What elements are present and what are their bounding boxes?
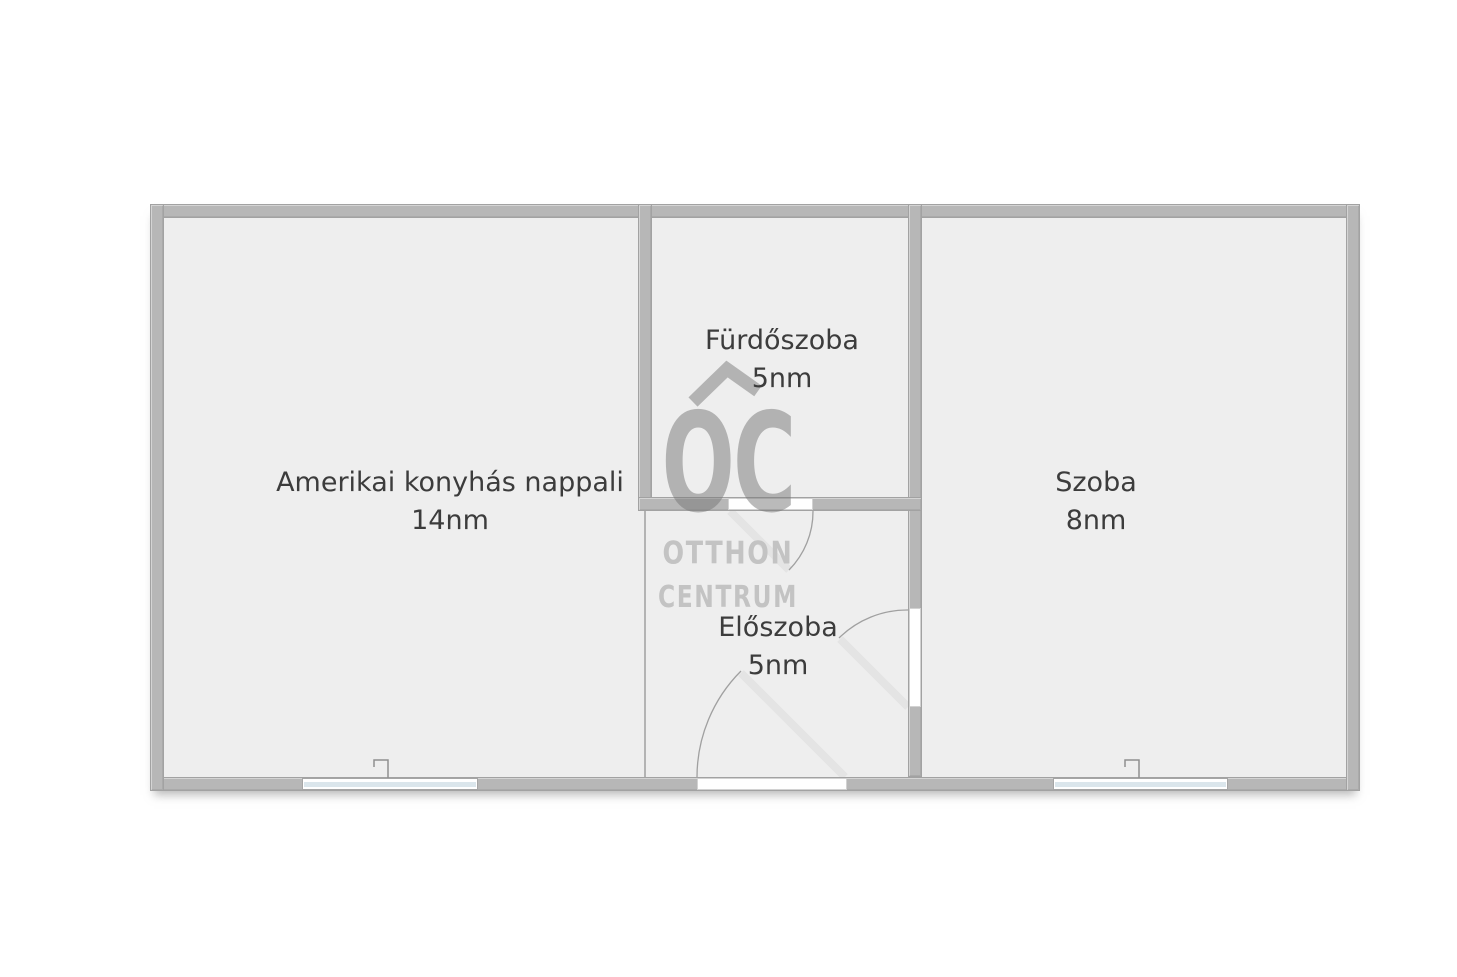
room-name: Amerikai konyhás nappali <box>276 464 624 502</box>
wall-divider-living-bathroom <box>638 204 652 511</box>
window-bedroom <box>1053 778 1228 790</box>
wall-top <box>150 204 1360 218</box>
room-label-bedroom: Szoba 8nm <box>1055 464 1137 540</box>
watermark-monogram: OC <box>662 396 795 533</box>
wall-right <box>1346 204 1360 791</box>
room-area: 5nm <box>718 647 838 685</box>
window-glass <box>1055 782 1226 787</box>
room-label-living: Amerikai konyhás nappali 14nm <box>276 464 624 540</box>
door-opening-bedroom <box>909 608 921 707</box>
room-label-bathroom: Fürdőszoba 5nm <box>705 322 859 398</box>
room-name: Előszoba <box>718 609 838 647</box>
door-opening-entry <box>697 778 847 790</box>
window-glass <box>304 782 476 787</box>
room-name: Fürdőszoba <box>705 322 859 360</box>
room-label-hall: Előszoba 5nm <box>718 609 838 685</box>
room-area: 14nm <box>276 502 624 540</box>
room-area: 5nm <box>705 360 859 398</box>
watermark-name-line1: OTTHON <box>663 539 794 570</box>
wall-left <box>150 204 164 791</box>
room-name: Szoba <box>1055 464 1137 502</box>
room-boundary-line <box>644 511 646 777</box>
window-living-room <box>302 778 478 790</box>
floor-plan: OC OTTHON CENTRUM Amerikai konyhás nappa… <box>0 0 1457 977</box>
room-area: 8nm <box>1055 502 1137 540</box>
